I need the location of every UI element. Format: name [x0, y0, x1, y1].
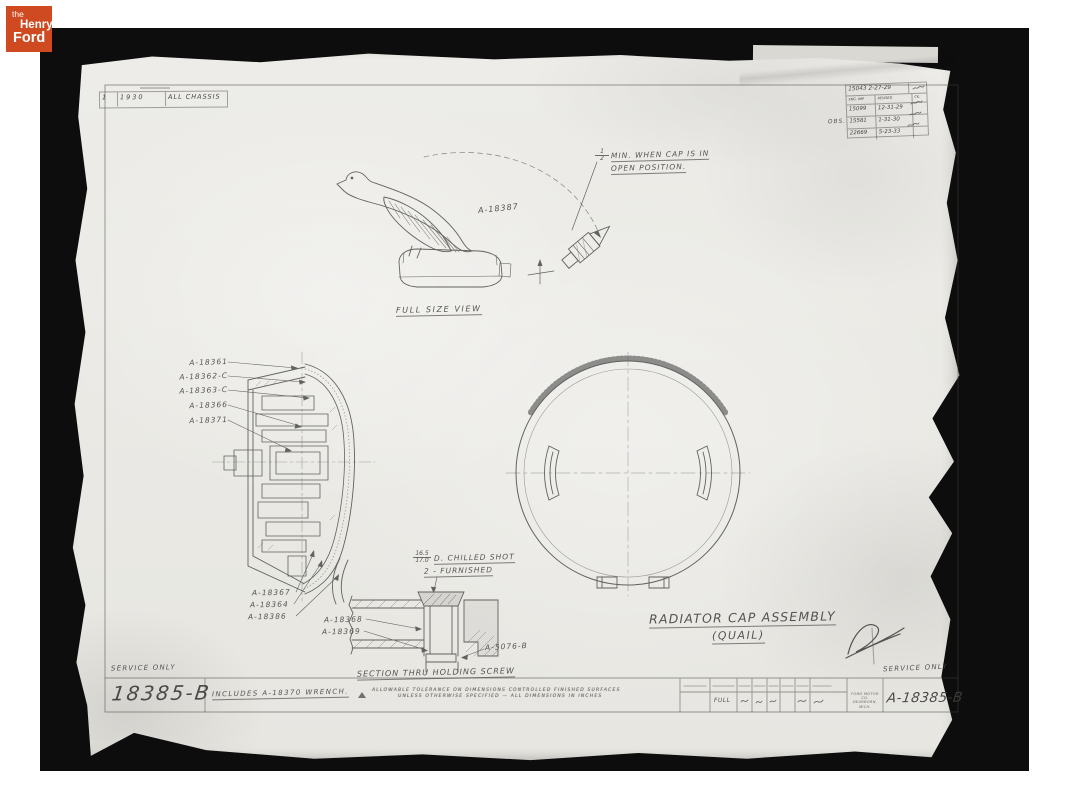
rev-row-date: 12-31-29 [875, 103, 912, 115]
rev-row-check [912, 114, 927, 126]
section-label-bottom: A-18386 [248, 612, 287, 622]
model-table-header-smudge [140, 87, 170, 89]
screw-label-a: A-18368 [324, 615, 363, 625]
rev-header-ck: CK. [911, 93, 926, 102]
henry-ford-logo: the Henry Ford [6, 6, 52, 52]
fraction-denominator: 2 [595, 155, 609, 162]
chilled-shot-note-line2: 2 - FURNISHED [424, 565, 493, 577]
drawing-number-right: A-18385-B [886, 690, 964, 707]
rev-header-eng: ENG. IMP [846, 95, 874, 104]
full-size-view-caption: FULL SIZE VIEW [396, 304, 482, 317]
model-year: 1930 [117, 92, 165, 106]
rev-row-number: 15581 [847, 116, 875, 128]
min-gap-fraction: 1 2 [595, 149, 609, 162]
rev-row-date: 5-23-33 [876, 127, 913, 139]
model-table: 1 1930 ALL CHASSIS [99, 91, 228, 109]
model-scope: ALL CHASSIS [165, 92, 227, 106]
company-block: FORD MOTOR CO. DEARBORN, MICH. [848, 692, 882, 709]
release-number: 15043 [848, 86, 867, 93]
release-check-cell [908, 82, 926, 93]
section-label-bottom: A-18364 [250, 600, 289, 610]
rev-row-check [912, 102, 927, 114]
tolerance-fine-print-line1: ALLOWABLE TOLERANCE ON DIMENSIONS CONTRO… [372, 688, 621, 693]
tolerance-fine-print-line2: UNLESS OTHERWISE SPECIFIED — ALL DIMENSI… [398, 694, 602, 699]
chilled-shot-note-line1: D. CHILLED SHOT [434, 552, 515, 565]
chilled-shot-fraction: 16.5 17.0 [413, 551, 431, 564]
open-position-note-line2: OPEN POSITION. [611, 162, 687, 175]
company-line2: DEARBORN, MICH. [848, 700, 882, 708]
scale-value: FULL [714, 697, 731, 704]
screw-label-b: A-18369 [322, 627, 361, 637]
rev-row-number: 22669 [848, 128, 876, 140]
revision-table: 15043 2-27-29 ENG. IMP REVISED CK. 15099… [845, 81, 929, 138]
fraction-denominator: 17.0 [413, 557, 431, 564]
rev-header-revised: REVISED [874, 94, 911, 103]
release-date: 2-27-29 [868, 85, 891, 92]
drawing-title-line1: RADIATOR CAP ASSEMBLY [649, 608, 836, 628]
logo-word-ford: Ford [13, 31, 52, 46]
company-line1: FORD MOTOR CO. [848, 692, 882, 700]
service-only-left: SERVICE ONLY [111, 663, 176, 672]
rev-row-date: 1-31-30 [875, 115, 912, 127]
drawing-title-line2: (QUAIL) [712, 629, 765, 645]
rev-row-number: 15099 [847, 104, 875, 116]
section-label-bottom: A-18367 [252, 588, 291, 598]
obsolete-prefix: OBS. [828, 119, 846, 126]
rev-row-check [913, 126, 928, 138]
model-index: 1 [100, 92, 117, 106]
photo-of-engineering-drawing: the Henry Ford [0, 0, 1067, 800]
logo-word-the: the [12, 10, 52, 19]
drawing-number-left: 18385-B [110, 680, 212, 705]
